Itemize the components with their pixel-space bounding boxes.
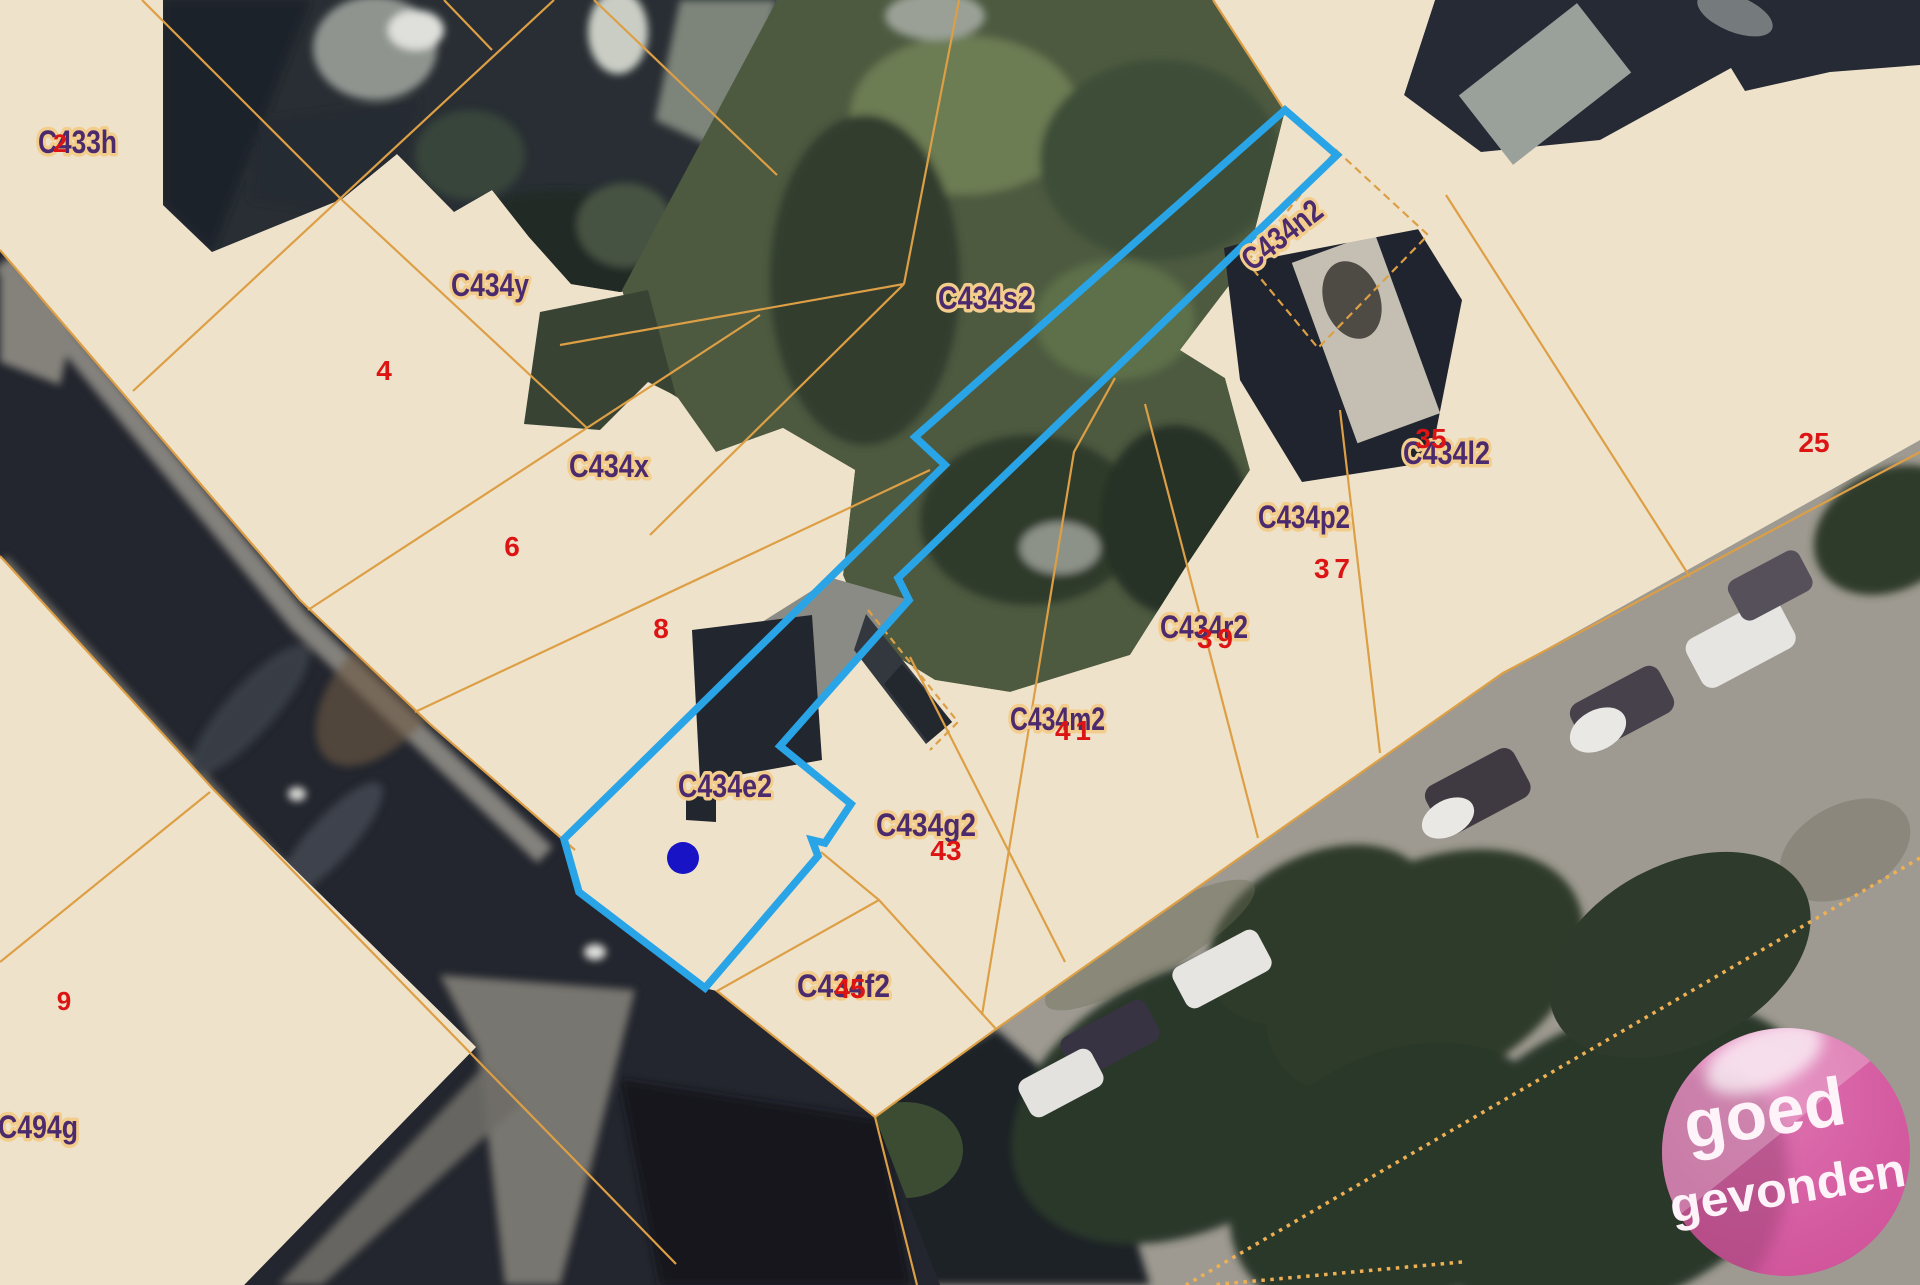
- svg-text:C494g: C494g: [0, 1109, 78, 1145]
- svg-text:35: 35: [1415, 423, 1446, 454]
- svg-text:6: 6: [504, 531, 520, 562]
- svg-text:C434p2: C434p2: [1258, 499, 1350, 535]
- svg-text:C433h: C433h: [38, 124, 117, 160]
- svg-text:8: 8: [653, 613, 669, 644]
- svg-text:4: 4: [376, 355, 392, 386]
- svg-text:43: 43: [930, 835, 961, 866]
- svg-text:C434y: C434y: [451, 267, 529, 303]
- svg-text:C434s2: C434s2: [938, 280, 1033, 316]
- svg-text:C434x: C434x: [569, 448, 649, 484]
- svg-text:45: 45: [834, 973, 865, 1004]
- svg-text:C434e2: C434e2: [678, 768, 772, 804]
- svg-text:25: 25: [1798, 427, 1829, 458]
- svg-text:2: 2: [53, 130, 67, 158]
- svg-text:9: 9: [57, 986, 71, 1016]
